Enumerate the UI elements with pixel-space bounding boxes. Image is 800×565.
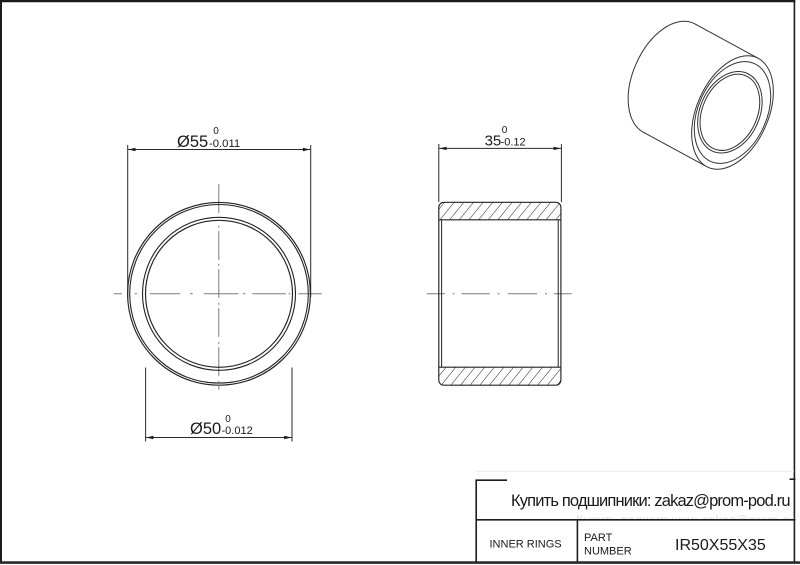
svg-text:IR50X55X35: IR50X55X35 (675, 537, 766, 554)
svg-text:Ø50: Ø50 (190, 420, 221, 438)
svg-text:NUMBER: NUMBER (584, 546, 632, 558)
svg-text:0: 0 (213, 126, 219, 137)
svg-text:35: 35 (485, 132, 502, 149)
svg-text:INNER RINGS: INNER RINGS (490, 539, 562, 551)
svg-text:0: 0 (502, 125, 508, 136)
svg-text:-0.12: -0.12 (501, 136, 526, 148)
svg-text:Ø55: Ø55 (177, 133, 208, 151)
svg-text:-0.011: -0.011 (209, 138, 240, 150)
svg-text:0: 0 (225, 414, 231, 425)
svg-text:Купить подшипники: zakaz@prom-: Купить подшипники: zakaz@prom-pod.ru (511, 492, 791, 510)
svg-text:PART: PART (584, 532, 613, 544)
svg-text:-0.012: -0.012 (222, 425, 253, 437)
